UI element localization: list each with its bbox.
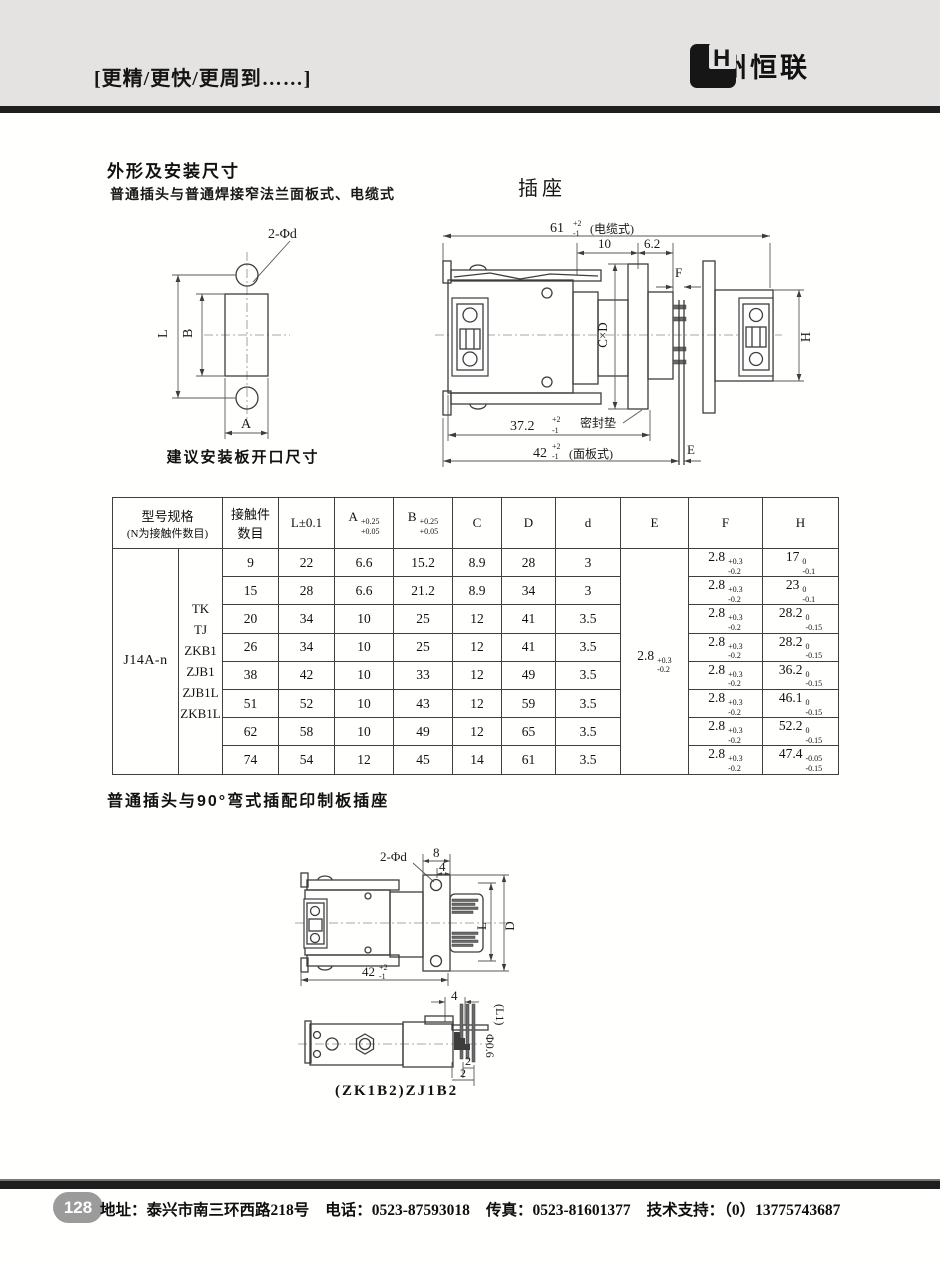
dim-L1: (L1): [493, 1004, 507, 1025]
svg-text:-1: -1: [379, 972, 386, 981]
plug-body-outline: [443, 261, 686, 465]
cell-H: 52.20-0.15: [763, 718, 839, 746]
col-header-L: L±0.1: [279, 498, 335, 549]
dim-8: 8: [433, 845, 440, 860]
col-header-B: B+0.25+0.05: [394, 498, 453, 549]
cell-B: 25: [394, 605, 453, 633]
cell-C: 8.9: [453, 577, 502, 605]
cell-contacts: 15: [223, 577, 279, 605]
dim-42: 42: [362, 964, 375, 979]
cell-B: 15.2: [394, 549, 453, 577]
cell-F: 2.8+0.3-0.2: [689, 718, 763, 746]
dim-H: H: [799, 332, 814, 342]
cell-L: 22: [279, 549, 335, 577]
cell-F: 2.8+0.3-0.2: [689, 689, 763, 717]
svg-text:+2: +2: [573, 219, 582, 228]
variants-cell: TKTJ ZKB1ZJB1 ZJB1LZKB1L: [179, 549, 223, 775]
dim-42-note: (面板式): [569, 447, 613, 461]
dim-10: 10: [598, 236, 611, 251]
header-slogan: [更精/更快/更周到……]: [94, 62, 311, 91]
cell-F: 2.8+0.3-0.2: [689, 549, 763, 577]
footer-address: 地址：泰兴市南三环西路218号: [100, 1198, 309, 1220]
cell-B: 33: [394, 661, 453, 689]
cell-H: 36.20-0.15: [763, 661, 839, 689]
section1-title: 外形及安装尺寸: [107, 157, 240, 182]
dim-B: B: [181, 329, 196, 338]
col-header-E: E: [621, 498, 689, 549]
model-cell: J14A-n: [113, 549, 179, 775]
cell-C: 12: [453, 718, 502, 746]
plate-caption: 建议安装板开口尺寸: [166, 448, 319, 466]
cell-contacts: 74: [223, 746, 279, 774]
cell-d: 3.5: [556, 746, 621, 774]
pcb-socket-drawing: 4 (L1) Φ0.6 2 2 (ZK1B2)ZJ1B: [280, 992, 570, 1110]
lh-logo-icon: H: [690, 44, 736, 88]
col-header-model: 型号规格 (N为接触件数目): [113, 498, 223, 549]
cell-contacts: 38: [223, 661, 279, 689]
svg-text:+2: +2: [379, 963, 388, 972]
dim-CxD: C×D: [595, 322, 610, 347]
col-header-contacts: 接触件 数目: [223, 498, 279, 549]
cell-C: 12: [453, 661, 502, 689]
socket-side-drawing: 61 +2 -1 (电缆式) 10 6.2: [430, 213, 850, 485]
page-header: [更精/更快/更周到……] H 泰州恒联: [0, 0, 940, 106]
pcb-caption: (ZK1B2)ZJ1B2: [335, 1083, 458, 1099]
dim-2phid: 2-Φd: [380, 849, 407, 864]
col-header-F: F: [689, 498, 763, 549]
cell-H: 28.20-0.15: [763, 633, 839, 661]
plug-outline: [301, 873, 483, 972]
socket-label: 插座: [518, 172, 566, 201]
cell-H: 170-0.1: [763, 549, 839, 577]
top-divider-bar: [0, 106, 940, 113]
cell-E: 2.8+0.3-0.2: [621, 549, 689, 775]
cell-B: 45: [394, 746, 453, 774]
dim-E: E: [687, 442, 695, 457]
cell-L: 52: [279, 689, 335, 717]
svg-text:+2: +2: [552, 442, 561, 451]
cell-contacts: 9: [223, 549, 279, 577]
spec-table: 型号规格 (N为接触件数目) 接触件 数目 L±0.1 A+0.25+0.05 …: [112, 497, 839, 775]
footer-contact-line: 地址：泰兴市南三环西路218号 电话：0523-87593018 传真：0523…: [100, 1198, 840, 1220]
company-logo: H 泰州恒联: [690, 46, 810, 85]
cell-D: 34: [502, 577, 556, 605]
cell-d: 3.5: [556, 718, 621, 746]
dim-D: D: [502, 921, 517, 930]
dim-2phid: 2-Φd: [268, 227, 297, 242]
pcb-socket-outline: [305, 1004, 488, 1067]
cell-D: 59: [502, 689, 556, 717]
catalog-page: [更精/更快/更周到……] H 泰州恒联 外形及安装尺寸 普通插头与普通焊接窄法…: [0, 0, 940, 1266]
cell-B: 43: [394, 689, 453, 717]
dim-2b: 2: [460, 1066, 466, 1080]
cell-d: 3.5: [556, 605, 621, 633]
bottom-divider-bar: [0, 1179, 940, 1189]
footer-phone: 电话：0523-87593018: [325, 1198, 470, 1220]
svg-text:-1: -1: [552, 452, 559, 461]
dim-phi06: Φ0.6: [483, 1034, 497, 1058]
cell-D: 49: [502, 661, 556, 689]
cell-B: 21.2: [394, 577, 453, 605]
dim-61-note: (电缆式): [590, 222, 634, 236]
cell-F: 2.8+0.3-0.2: [689, 746, 763, 774]
dim-42: 42: [533, 446, 547, 461]
logo-letter: H: [713, 45, 730, 72]
cell-d: 3.5: [556, 633, 621, 661]
cell-A: 6.6: [335, 549, 394, 577]
section2-title: 普通插头与90°弯式插配印制板插座: [107, 787, 389, 811]
cell-F: 2.8+0.3-0.2: [689, 577, 763, 605]
cell-C: 12: [453, 633, 502, 661]
cell-D: 65: [502, 718, 556, 746]
cell-C: 14: [453, 746, 502, 774]
svg-text:-1: -1: [573, 229, 580, 238]
col-header-D: D: [502, 498, 556, 549]
cell-C: 12: [453, 689, 502, 717]
cell-d: 3.5: [556, 689, 621, 717]
dim-4: 4: [451, 988, 458, 1003]
dim-372: 37.2: [510, 419, 535, 434]
cell-L: 34: [279, 633, 335, 661]
cell-L: 28: [279, 577, 335, 605]
cell-C: 8.9: [453, 549, 502, 577]
dim-L: L: [474, 922, 489, 930]
cell-B: 49: [394, 718, 453, 746]
cell-H: 47.4-0.05-0.15: [763, 746, 839, 774]
cell-A: 10: [335, 605, 394, 633]
cell-D: 28: [502, 549, 556, 577]
panel-socket-outline: [703, 261, 773, 413]
cell-d: 3.5: [556, 661, 621, 689]
cell-D: 41: [502, 605, 556, 633]
col-header-A: A+0.25+0.05: [335, 498, 394, 549]
cell-A: 10: [335, 689, 394, 717]
col-header-H: H: [763, 498, 839, 549]
cell-d: 3: [556, 549, 621, 577]
cell-L: 58: [279, 718, 335, 746]
dim-A: A: [241, 417, 252, 432]
cell-contacts: 26: [223, 633, 279, 661]
cell-L: 54: [279, 746, 335, 774]
cell-contacts: 51: [223, 689, 279, 717]
cell-A: 10: [335, 718, 394, 746]
dim-L: L: [156, 329, 171, 338]
cell-A: 10: [335, 633, 394, 661]
footer-support: 技术支持：（0）13775743687: [647, 1198, 841, 1220]
cell-A: 10: [335, 661, 394, 689]
dim-F: F: [675, 265, 682, 280]
dim-62: 6.2: [644, 236, 660, 251]
col-header-C: C: [453, 498, 502, 549]
cell-F: 2.8+0.3-0.2: [689, 605, 763, 633]
page-number-badge: 128: [53, 1192, 103, 1223]
cell-H: 46.10-0.15: [763, 689, 839, 717]
dim-4: 4: [439, 859, 446, 874]
seal-gasket-label: 密封垫: [580, 415, 616, 430]
cell-L: 34: [279, 605, 335, 633]
cell-F: 2.8+0.3-0.2: [689, 661, 763, 689]
cell-contacts: 20: [223, 605, 279, 633]
svg-text:-1: -1: [552, 426, 559, 435]
cell-d: 3: [556, 577, 621, 605]
dim-61: 61: [550, 221, 564, 236]
cell-L: 42: [279, 661, 335, 689]
col-header-d: d: [556, 498, 621, 549]
cell-B: 25: [394, 633, 453, 661]
cell-contacts: 62: [223, 718, 279, 746]
section1-subtitle: 普通插头与普通焊接窄法兰面板式、电缆式: [110, 184, 395, 204]
cell-A: 6.6: [335, 577, 394, 605]
cell-A: 12: [335, 746, 394, 774]
cell-C: 12: [453, 605, 502, 633]
cell-H: 28.20-0.15: [763, 605, 839, 633]
cell-H: 230-0.1: [763, 577, 839, 605]
footer-fax: 传真：0523-81601377: [486, 1198, 631, 1220]
mounting-plate-drawing: 2-Φd B L A 建议安装板开口尺寸: [140, 212, 450, 472]
cell-D: 61: [502, 746, 556, 774]
cell-D: 41: [502, 633, 556, 661]
plug-pcb-socket-drawing: 2-Φd 8 4: [280, 828, 570, 1003]
svg-text:+2: +2: [552, 415, 561, 424]
cell-F: 2.8+0.3-0.2: [689, 633, 763, 661]
